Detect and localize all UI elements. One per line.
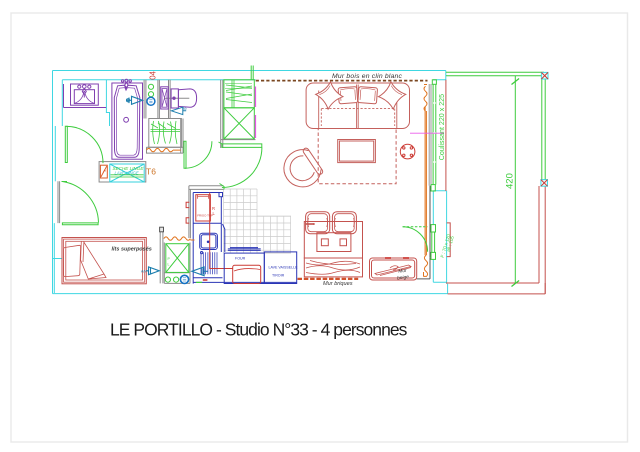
svg-text:Mur: Mur: [398, 268, 407, 275]
svg-text:LAVE LINGE: LAVE LINGE: [115, 171, 139, 176]
svg-text:T6: T6: [146, 167, 156, 177]
svg-text:FOUR: FOUR: [235, 257, 246, 261]
svg-text:Coulissant 220 x 225: Coulissant 220 x 225: [438, 94, 446, 160]
svg-text:TIROIR: TIROIR: [272, 274, 285, 278]
svg-text:L: L: [168, 263, 170, 267]
svg-text:A/V: A/V: [141, 270, 147, 274]
svg-text:lits superposés: lits superposés: [112, 246, 152, 252]
svg-text:04: 04: [149, 70, 158, 79]
svg-text:FRIGO TOP: FRIGO TOP: [197, 214, 213, 218]
svg-text:Mur bois en clin blanc: Mur bois en clin blanc: [332, 73, 403, 80]
svg-text:Mur briques: Mur briques: [323, 281, 353, 287]
svg-text:89: 89: [183, 107, 187, 111]
svg-text:LAVE VAISSELLE: LAVE VAISSELLE: [269, 266, 299, 270]
svg-text:420: 420: [505, 173, 516, 189]
svg-text:LE PORTILLO - Studio N°33 - 4: LE PORTILLO - Studio N°33 - 4 personnes: [110, 320, 408, 340]
